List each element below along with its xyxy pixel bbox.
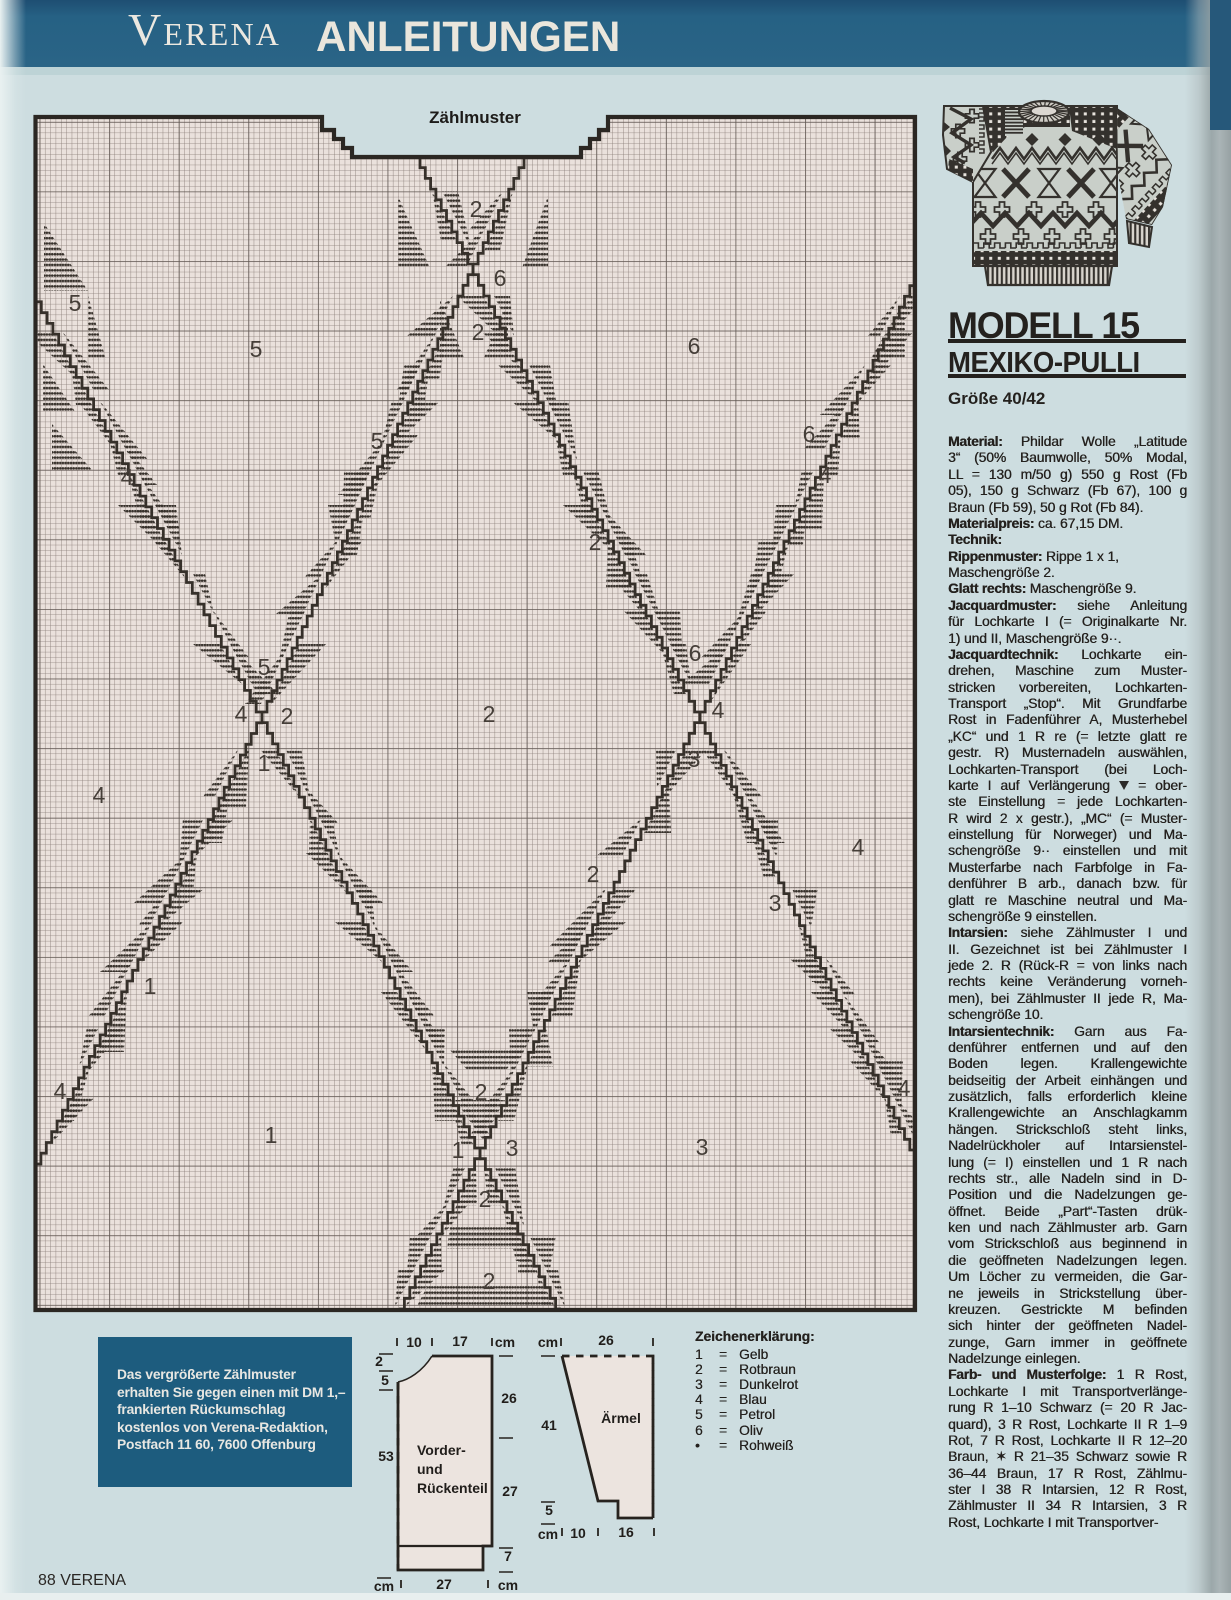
svg-text:cm: cm (538, 1526, 558, 1542)
svg-text:4: 4 (898, 1075, 911, 1101)
svg-text:cm: cm (495, 1334, 515, 1350)
svg-text:1: 1 (258, 750, 271, 776)
svg-text:2: 2 (475, 1079, 488, 1105)
svg-text:Ärmel: Ärmel (601, 1410, 641, 1426)
svg-text:6: 6 (689, 640, 702, 666)
svg-text:cm: cm (538, 1334, 558, 1350)
svg-text:26: 26 (501, 1390, 517, 1406)
svg-text:Vorder-: Vorder- (417, 1442, 466, 1458)
svg-text:4: 4 (121, 464, 134, 490)
svg-text:5: 5 (69, 290, 82, 316)
svg-text:27: 27 (436, 1576, 452, 1592)
svg-text:3: 3 (506, 1135, 519, 1161)
svg-text:3: 3 (769, 890, 782, 916)
svg-text:5: 5 (250, 336, 263, 362)
svg-text:3: 3 (696, 1134, 709, 1160)
svg-text:6: 6 (688, 333, 701, 359)
svg-text:53: 53 (378, 1448, 394, 1464)
svg-text:1: 1 (265, 1122, 278, 1148)
svg-text:16: 16 (618, 1524, 634, 1540)
svg-text:41: 41 (541, 1417, 557, 1433)
svg-text:Rückenteil: Rückenteil (417, 1480, 488, 1496)
svg-text:7: 7 (504, 1548, 512, 1564)
svg-text:4: 4 (54, 1078, 67, 1104)
svg-text:10: 10 (570, 1525, 586, 1541)
svg-text:17: 17 (452, 1333, 468, 1349)
svg-text:26: 26 (598, 1332, 614, 1348)
svg-text:6: 6 (803, 421, 816, 447)
svg-text:6: 6 (494, 265, 507, 291)
svg-text:1: 1 (144, 973, 157, 999)
svg-text:10: 10 (406, 1334, 422, 1350)
svg-text:2: 2 (472, 319, 485, 345)
svg-text:1: 1 (452, 1137, 465, 1163)
svg-text:4: 4 (235, 701, 248, 727)
svg-text:3: 3 (688, 746, 701, 772)
svg-text:5: 5 (381, 1372, 389, 1388)
svg-text:und: und (417, 1461, 443, 1477)
svg-text:5: 5 (545, 1502, 553, 1518)
svg-text:5: 5 (371, 428, 384, 454)
svg-text:4: 4 (712, 697, 725, 723)
svg-text:4: 4 (93, 782, 106, 808)
svg-text:2: 2 (483, 701, 496, 727)
svg-text:2: 2 (470, 196, 483, 222)
svg-text:2: 2 (479, 1186, 492, 1212)
svg-text:5: 5 (258, 654, 271, 680)
svg-text:cm: cm (498, 1577, 518, 1593)
svg-text:4: 4 (819, 462, 832, 488)
svg-text:2: 2 (483, 1268, 496, 1294)
svg-text:2: 2 (589, 529, 602, 555)
svg-text:2: 2 (587, 861, 600, 887)
svg-text:2: 2 (281, 703, 294, 729)
svg-text:cm: cm (374, 1578, 394, 1594)
svg-text:2: 2 (375, 1353, 383, 1369)
svg-text:4: 4 (852, 834, 865, 860)
svg-text:27: 27 (502, 1483, 518, 1499)
